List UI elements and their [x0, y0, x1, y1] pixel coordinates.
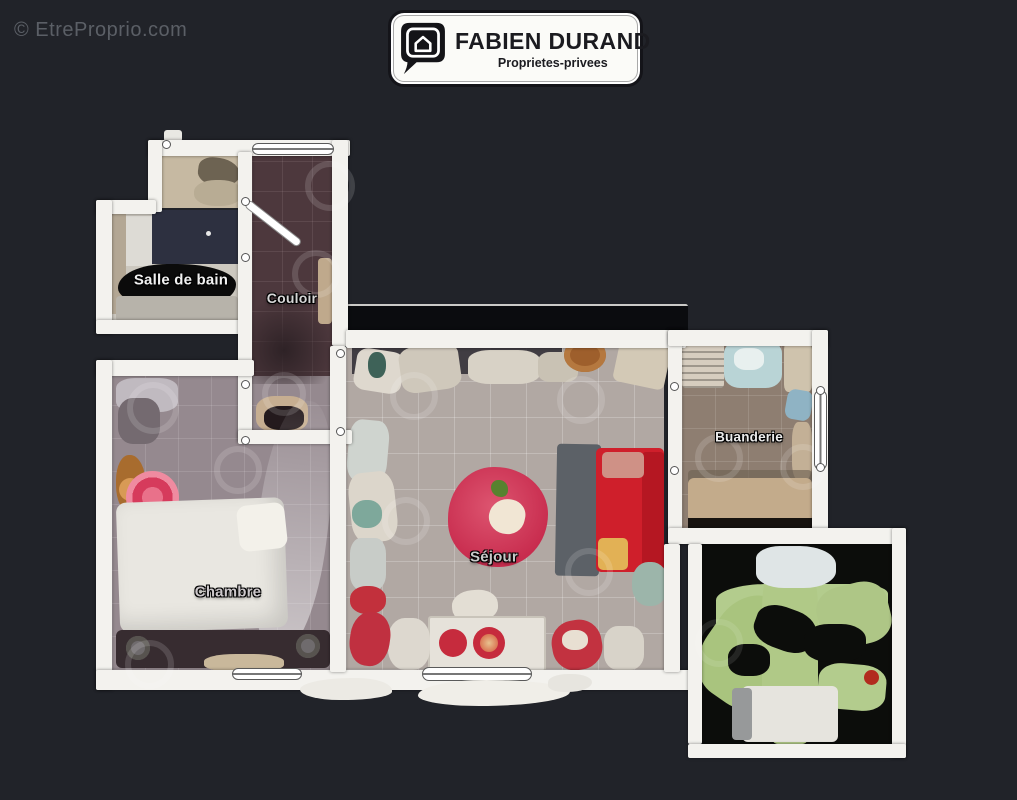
outdoor-bed-side	[732, 688, 752, 740]
door-jamb-marker	[336, 427, 345, 436]
wall	[238, 152, 252, 442]
wall	[346, 330, 686, 348]
room-label-salle-de-bain: Salle de bain	[134, 272, 228, 289]
door-jamb-marker	[816, 463, 825, 472]
watermark-ring	[557, 376, 605, 424]
door-jamb-marker	[670, 466, 679, 475]
watermark-ring	[125, 640, 174, 689]
footboard-speaker	[296, 634, 320, 658]
washing-machine	[682, 340, 724, 388]
wall	[668, 330, 682, 544]
real-estate-floorplan-image: © EtreProprio.com FABIEN DURAND Propriet…	[0, 0, 1017, 800]
wall	[330, 346, 346, 672]
wall	[96, 670, 692, 690]
wall	[892, 528, 906, 758]
wall	[96, 360, 254, 376]
window-symbol	[232, 668, 302, 680]
wc-sink	[194, 180, 242, 206]
chair-seat-white	[562, 630, 588, 650]
watermark-ring	[565, 548, 613, 596]
plant-teal	[352, 500, 382, 528]
sofa-cushion	[602, 452, 644, 478]
table-plant	[491, 480, 508, 497]
door-jamb-marker	[241, 436, 250, 445]
window-symbol	[252, 143, 334, 155]
watermark-ring	[390, 372, 438, 420]
red-pouf	[350, 586, 386, 614]
laundry-white	[734, 348, 764, 370]
tub-surround	[124, 216, 152, 266]
watermark-ring	[305, 161, 355, 211]
placemat-red	[439, 629, 467, 657]
door-jamb-marker	[816, 386, 825, 395]
door-jamb-marker	[241, 380, 250, 389]
unscanned-hole	[804, 624, 866, 662]
balcony-decor-blob	[300, 678, 392, 700]
white-clutter	[756, 546, 836, 588]
floorplan-canvas: Salle de bain Couloir Chambre Séjour Bua…	[0, 0, 1017, 800]
watermark-ring	[382, 497, 430, 545]
shelf-beige	[784, 342, 812, 392]
wall	[668, 528, 906, 544]
red-dot	[864, 670, 879, 685]
door-jamb-marker	[670, 382, 679, 391]
plant-teal	[368, 352, 386, 378]
bathtub	[152, 210, 238, 264]
clutter-white	[604, 626, 644, 670]
wall-clutter	[350, 538, 386, 590]
wall	[668, 330, 828, 346]
bathtub-dot	[206, 231, 211, 236]
wall	[664, 544, 680, 672]
bath-floor-strip	[116, 296, 238, 322]
door-jamb-marker	[162, 140, 171, 149]
room-label-buanderie: Buanderie	[715, 430, 783, 445]
wall	[688, 744, 906, 758]
counter-front-dark	[688, 518, 812, 528]
window-symbol	[422, 667, 532, 681]
placemat-food	[480, 634, 498, 652]
bed-pillow	[236, 502, 289, 553]
shelf-clutter	[468, 350, 540, 384]
watermark-ring	[214, 446, 262, 494]
outdoor-bed	[742, 686, 838, 742]
door-jamb-marker	[241, 253, 250, 262]
watermark-ring	[695, 619, 743, 667]
sofa-back-dark	[642, 452, 664, 570]
wall	[96, 360, 112, 690]
watermark-ring	[127, 382, 179, 434]
door-jamb-marker	[336, 349, 345, 358]
room-label-couloir: Couloir	[267, 290, 317, 306]
room-label-sejour: Séjour	[470, 549, 518, 566]
watermark-ring	[262, 372, 306, 416]
wall	[96, 200, 112, 334]
wall	[96, 320, 248, 334]
window-symbol	[814, 390, 827, 470]
dining-chair-white	[388, 618, 430, 670]
armchair-teal	[632, 562, 668, 606]
door-jamb-marker	[241, 197, 250, 206]
room-label-chambre: Chambre	[195, 584, 261, 601]
